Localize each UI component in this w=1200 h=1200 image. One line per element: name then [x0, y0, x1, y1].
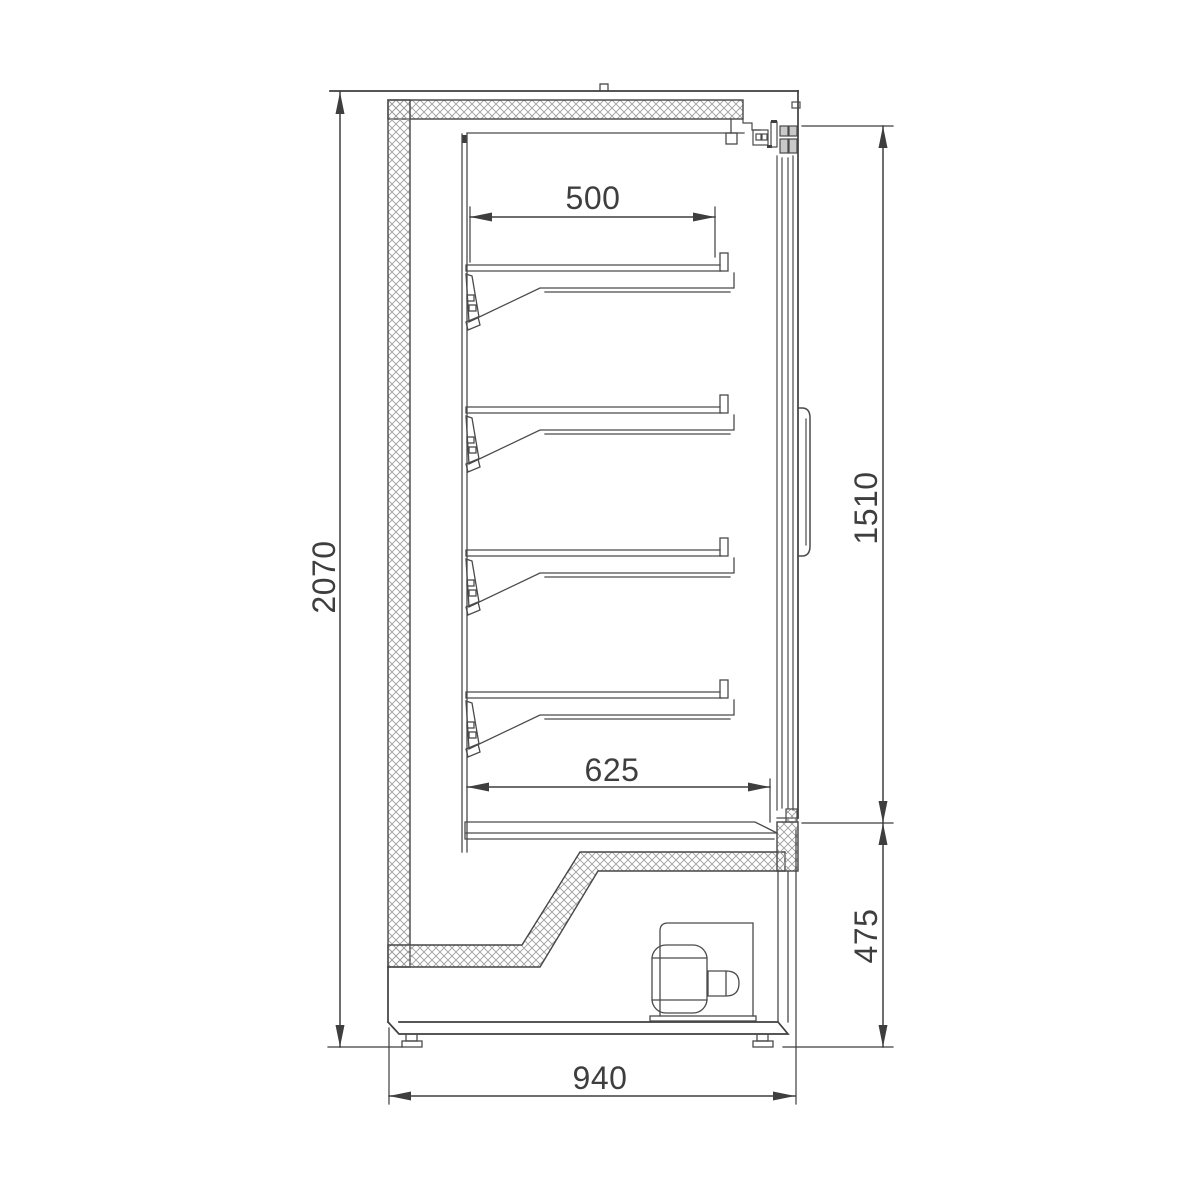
back-duct-panel	[462, 134, 467, 852]
clip-foot	[466, 744, 480, 757]
interior-liner	[462, 119, 777, 852]
lock-detail-right	[762, 134, 767, 140]
door-bottom-gasket	[786, 809, 797, 822]
shelf-front-lip	[720, 680, 728, 698]
dim-overall-depth-label: 940	[573, 1060, 628, 1096]
shelf-4	[466, 680, 734, 757]
clip-foot	[466, 459, 480, 472]
technical-drawing-canvas: 2070 500 1510 625 475	[0, 0, 1200, 1200]
frame-step	[743, 119, 760, 130]
left-foot-base	[402, 1041, 422, 1047]
clip-notch-lower	[469, 305, 476, 311]
shelf-assemblies	[466, 253, 734, 757]
compartment-front-wall	[778, 871, 788, 1022]
insulation-bottom-step	[388, 852, 785, 967]
top-joint-notch	[600, 84, 608, 91]
ceiling-tick	[462, 135, 467, 143]
dim-lower-depth: 625	[467, 752, 770, 822]
insulation-hatch	[388, 100, 798, 967]
base-outline	[388, 1022, 788, 1034]
interior-floor	[465, 822, 777, 839]
dim-shelf-depth: 500	[470, 180, 715, 262]
cabinet-section-drawing: 2070 500 1510 625 475	[0, 0, 1200, 1200]
dim-overall-height-label: 2070	[306, 540, 342, 613]
dim-base-height: 475	[783, 823, 893, 1047]
dim-door-height-label: 1510	[848, 471, 884, 544]
shelf-bracket	[473, 558, 734, 605]
insulation-right-block	[777, 822, 798, 871]
dim-base-height-label: 475	[848, 909, 884, 964]
shelf-front-lip	[720, 395, 728, 413]
shelf-3	[466, 538, 734, 615]
clip-notch-lower	[469, 732, 476, 738]
insulation-top-band	[388, 100, 743, 119]
hinge-strip	[771, 122, 777, 147]
shelf-plate	[466, 692, 721, 698]
shelf-1	[466, 253, 734, 330]
shelf-plate	[466, 265, 721, 271]
shelf-front-lip	[720, 253, 728, 271]
gasket-block-4	[789, 139, 797, 153]
shelf-wall-clip	[466, 416, 479, 464]
gasket-block-3	[780, 139, 788, 153]
door-frame-hardware	[743, 102, 800, 153]
gasket-block-1	[780, 126, 788, 136]
shelf-plate	[466, 407, 721, 413]
clip-notch-lower	[469, 447, 476, 453]
adjustable-feet	[402, 1034, 773, 1047]
clip-foot	[466, 602, 480, 615]
compressor-base-plate	[650, 1016, 756, 1021]
right-foot-base	[753, 1041, 773, 1047]
clip-foot	[466, 317, 480, 330]
shelf-wall-clip	[466, 701, 479, 749]
dim-door-height: 1510	[802, 126, 893, 823]
right-foot-stem	[757, 1034, 768, 1041]
shelf-plate	[466, 550, 721, 556]
glass-door	[777, 156, 810, 822]
lock-detail-left	[756, 134, 761, 140]
shelf-front-lip	[720, 538, 728, 556]
clip-notch-lower	[469, 590, 476, 596]
shelf-bracket	[473, 700, 734, 747]
ceiling-sensor-box	[726, 133, 737, 144]
door-pane-lines	[777, 156, 793, 810]
left-foot-stem	[406, 1034, 417, 1041]
shelf-bracket	[473, 415, 734, 462]
insulation-left-band	[388, 100, 410, 967]
door-handle	[798, 408, 810, 556]
shelf-bracket	[473, 273, 734, 320]
shelf-wall-clip	[466, 274, 479, 322]
compressor-cylinder	[708, 971, 739, 996]
shelf-2	[466, 395, 734, 472]
hinge-strip-cap	[771, 120, 777, 123]
gasket-block-2	[789, 126, 797, 136]
compressor-unit	[650, 871, 788, 1022]
dim-lower-depth-label: 625	[585, 752, 640, 788]
shelf-wall-clip	[466, 559, 479, 607]
dim-shelf-depth-label: 500	[566, 180, 621, 216]
